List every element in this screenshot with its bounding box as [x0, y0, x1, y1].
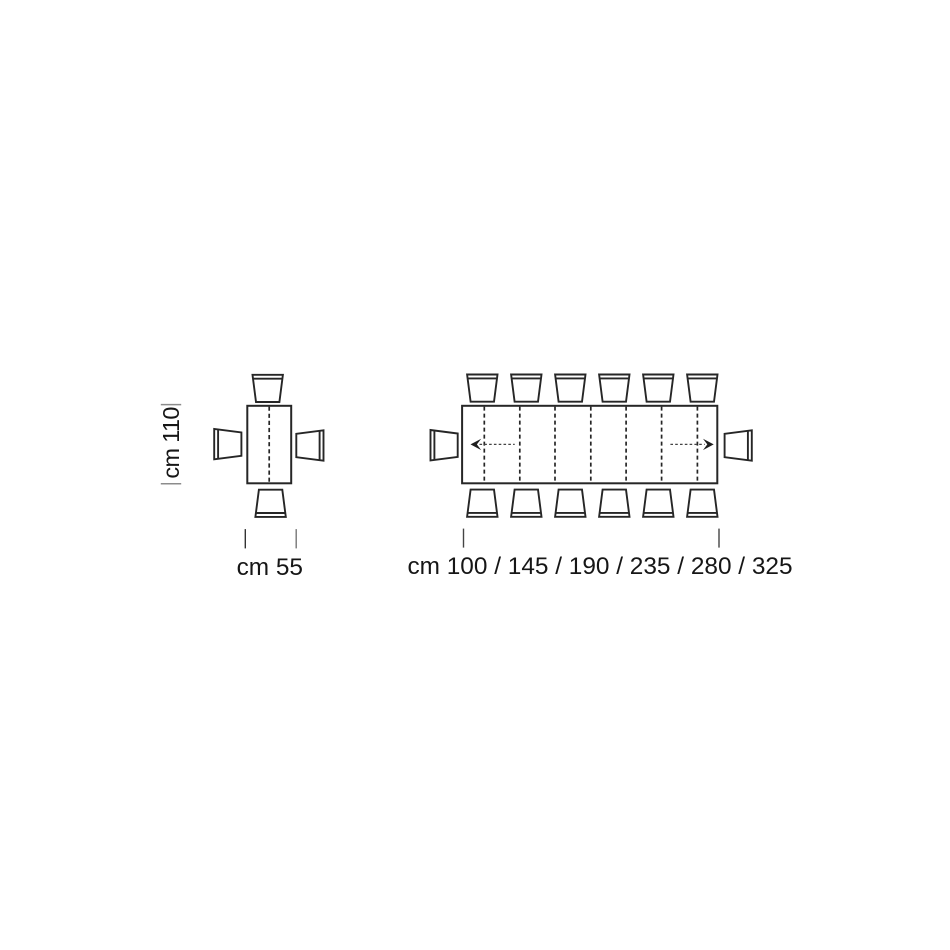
- svg-text:cm 110: cm 110: [158, 407, 184, 479]
- svg-text:cm 100 / 145 / 190 / 235 / 280: cm 100 / 145 / 190 / 235 / 280 / 325: [407, 553, 792, 580]
- svg-text:cm 55: cm 55: [237, 554, 303, 581]
